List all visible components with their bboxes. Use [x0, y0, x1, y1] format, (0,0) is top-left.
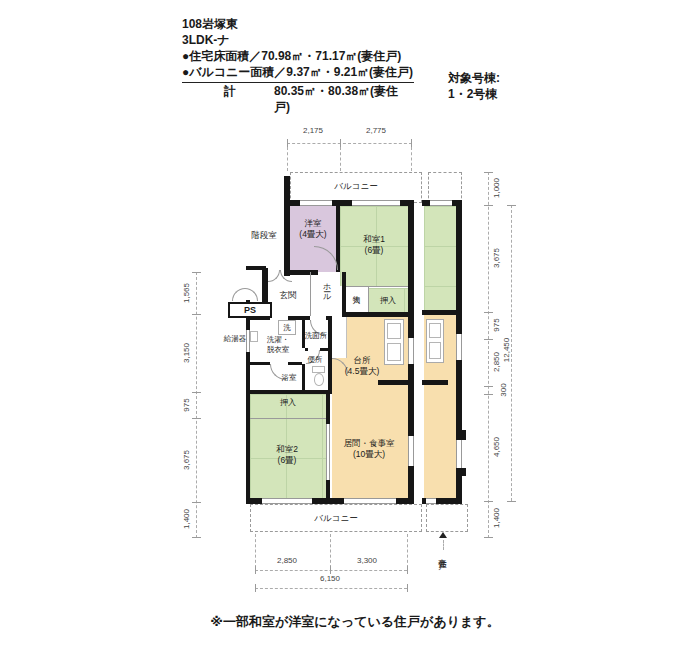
dim-top-2: 2,775 [346, 126, 406, 135]
window [408, 338, 414, 364]
kitchen-name: 台所 [332, 355, 392, 366]
window [408, 436, 414, 466]
living-dining-name: 居間・食事室 [331, 438, 407, 449]
dim-tick [192, 418, 201, 419]
dim-tick [192, 272, 201, 273]
dim-right-6: 4,650 [490, 425, 502, 469]
dim-bottom-total: 6,150 [300, 574, 360, 583]
dim-guide [411, 147, 412, 171]
total-label: 計 [224, 83, 236, 115]
western-room-name: 洋室 [288, 218, 338, 229]
toilet-tank [312, 366, 325, 373]
balcony-bottom: バルコニー [250, 504, 422, 532]
balcony-bottom-neighbor [426, 504, 468, 532]
dim-tick [407, 566, 408, 574]
dim-left-1: 1,565 [180, 271, 192, 315]
living-dining-label: 居間・食事室 (10畳大) [331, 438, 407, 459]
dim-tick [330, 566, 331, 574]
neighbor-stove [429, 342, 441, 359]
dim-tick [192, 537, 201, 538]
balcony-top: バルコニー [290, 172, 422, 203]
japanese-room-2-name: 和室2 [258, 444, 316, 455]
kitchen-label: 台所 (4.5畳大) [332, 355, 392, 376]
toilet-bowl [314, 373, 324, 386]
dim-tick [255, 566, 256, 574]
living-dining-size: (10畳大) [331, 449, 407, 460]
toilet-label: 便所 [302, 355, 328, 365]
wall [250, 362, 270, 365]
closet-upper-label: 押入 [368, 296, 408, 307]
floor-plan-page: 108岩塚東 3LDK-ナ ●住宅床面積／70.98㎡・71.17㎡(妻住戸) … [0, 0, 700, 650]
washer-label: 洗 [279, 323, 295, 333]
dim-tick [507, 205, 516, 206]
western-room-label: 洋室 (4畳大) [288, 218, 338, 239]
water-heater-label: 給湯器 [218, 334, 252, 344]
plan-type: 3LDK-ナ [182, 32, 414, 48]
hall-extension [332, 316, 347, 358]
floor-area-line: ●住宅床面積／70.98㎡・71.17㎡(妻住戸) [182, 48, 414, 64]
japanese-room-2-label: 和室2 (6畳) [258, 444, 316, 465]
laundry-line1: 洗濯・ [252, 335, 304, 345]
dim-line [255, 588, 407, 589]
dim-line [488, 172, 489, 538]
balcony-area-line: ●バルコニー面積／9.37㎡・9.21㎡(妻住戸) [182, 64, 414, 82]
wall [342, 312, 412, 317]
end-unit-leader [443, 540, 444, 550]
dim-tick [287, 139, 288, 147]
target-building-label: 対象号棟: [448, 70, 500, 86]
window [352, 200, 400, 206]
window [456, 334, 462, 360]
kitchen-size: (4.5畳大) [332, 366, 392, 377]
balcony-top-label: バルコニー [291, 181, 421, 192]
fusuma-line [250, 418, 326, 419]
dim-line [287, 143, 412, 144]
window [300, 200, 332, 206]
neighbor-sink [429, 323, 441, 338]
target-building-value: 1・2号棟 [448, 86, 500, 102]
target-building: 対象号棟: 1・2号棟 [448, 70, 500, 102]
pipe-shaft-label: PS [244, 305, 256, 315]
japanese-room-1-label: 和室1 (6畳) [344, 234, 404, 255]
dim-tick [340, 139, 341, 147]
dim-tick [484, 386, 493, 387]
dim-guide [287, 147, 288, 171]
wall [422, 380, 448, 385]
dim-right-2: 3,675 [490, 236, 502, 280]
entrance-label: 玄関 [271, 290, 305, 301]
dim-left-3: 975 [180, 383, 192, 427]
dim-guide [340, 147, 341, 171]
wall [246, 316, 250, 394]
western-room-size: (4畳大) [288, 229, 338, 240]
japanese-room-1-size: (6畳) [344, 245, 404, 256]
bathroom-label: 浴室 [274, 373, 304, 383]
japanese-room-1-name: 和室1 [344, 234, 404, 245]
window [430, 200, 452, 206]
neighbor-tatami [424, 206, 456, 310]
total-value: 80.35㎡・80.38㎡(妻住戸) [274, 83, 414, 115]
dim-guide [330, 534, 331, 568]
dim-left-5: 1,400 [180, 497, 192, 541]
dim-tick [192, 314, 201, 315]
wall [378, 380, 408, 385]
hall-label: ホール [321, 277, 331, 298]
entrance-step-line [310, 272, 311, 316]
dim-tick [407, 584, 408, 592]
wall [246, 394, 250, 504]
dim-guide [407, 534, 408, 568]
dim-tick [411, 139, 412, 147]
dim-right-total: 12,450 [500, 328, 512, 372]
dim-tick [507, 501, 516, 502]
dim-line [255, 570, 407, 571]
balcony-bottom-label: バルコニー [251, 513, 421, 524]
wall [290, 270, 318, 275]
balcony-top-neighbor [428, 172, 462, 203]
laundry-line2: 脱衣室 [252, 345, 304, 355]
dim-bottom-2: 3,300 [337, 556, 397, 565]
wall [320, 348, 328, 351]
dim-tick [192, 392, 201, 393]
total-row: 計 80.35㎡・80.38㎡(妻住戸) [182, 82, 414, 115]
wall [246, 390, 332, 394]
door-arc [280, 270, 292, 282]
wall [422, 310, 458, 315]
dim-tick [484, 394, 493, 395]
dim-bottom-1: 2,850 [257, 556, 317, 565]
dim-left-2: 3,150 [180, 331, 192, 375]
header: 108岩塚東 3LDK-ナ ●住宅床面積／70.98㎡・71.17㎡(妻住戸) … [182, 16, 414, 115]
dim-tick [192, 502, 201, 503]
end-unit-label: 妻住戸 [438, 552, 448, 555]
closet-left-label: 押入 [250, 398, 326, 409]
end-unit-arrow [439, 532, 447, 538]
dim-right-1: 1,000 [490, 166, 502, 210]
stairwell-label: 階段室 [242, 230, 286, 241]
dim-guide [255, 534, 256, 568]
japanese-room-2-size: (6畳) [258, 455, 316, 466]
wall-notch [460, 468, 466, 476]
dim-top-1: 2,175 [283, 126, 343, 135]
footer-note: ※一部和室が洋室になっている住戸があります。 [150, 613, 560, 631]
dim-left-4: 3,675 [180, 438, 192, 482]
page-title: 108岩塚東 [182, 16, 414, 32]
laundry-label: 洗濯・ 脱衣室 [252, 335, 304, 354]
washroom-label: 洗面所 [302, 331, 330, 341]
window [456, 440, 462, 468]
dim-line [196, 272, 197, 538]
dim-right-7: 1,400 [490, 496, 502, 540]
wall [342, 272, 346, 316]
dim-tick [255, 584, 256, 592]
door-arc [268, 270, 280, 282]
kitchen-sink [387, 323, 401, 339]
dim-right-5: 300 [497, 368, 509, 412]
fusuma-line [344, 286, 408, 287]
sliding-opening [326, 424, 330, 480]
wall [288, 362, 302, 365]
wall-notch [460, 430, 466, 440]
storage-label: 物入 [351, 289, 361, 291]
door-arc [232, 288, 245, 301]
